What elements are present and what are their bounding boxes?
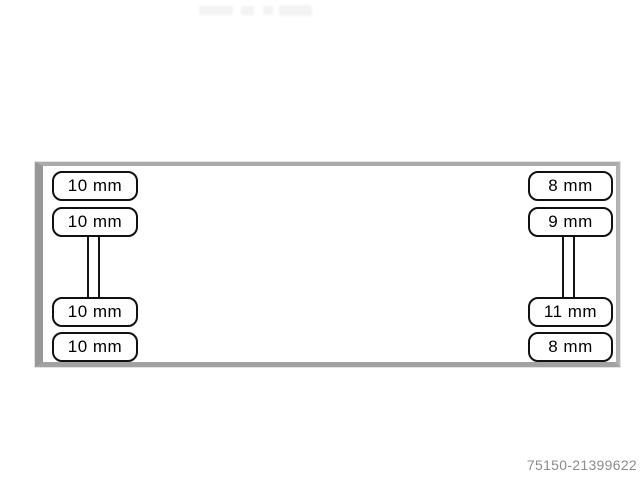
faint-artifact — [263, 6, 273, 15]
tire-tread-label-left-4: 10 mm — [52, 332, 138, 362]
tire-tread-label-left-1: 10 mm — [52, 171, 138, 201]
tire-tread-label-right-1: 8 mm — [528, 171, 613, 201]
screenshot-canvas: 10 mm 10 mm 10 mm 10 mm 8 mm 9 mm 11 mm … — [0, 0, 640, 480]
faint-artifact — [199, 6, 233, 15]
tire-tread-label-right-3: 11 mm — [528, 297, 613, 327]
axle-connector-right — [562, 236, 575, 298]
tire-tread-label-right-2: 9 mm — [528, 207, 613, 237]
tire-tread-label-right-4: 8 mm — [528, 332, 613, 362]
axle-connector-left — [87, 236, 100, 298]
tire-tread-label-left-3: 10 mm — [52, 297, 138, 327]
tire-tread-label-left-2: 10 mm — [52, 207, 138, 237]
faint-artifact — [241, 6, 254, 15]
image-id-text: 75150-21399622 — [527, 457, 637, 473]
faint-artifact — [279, 5, 312, 16]
